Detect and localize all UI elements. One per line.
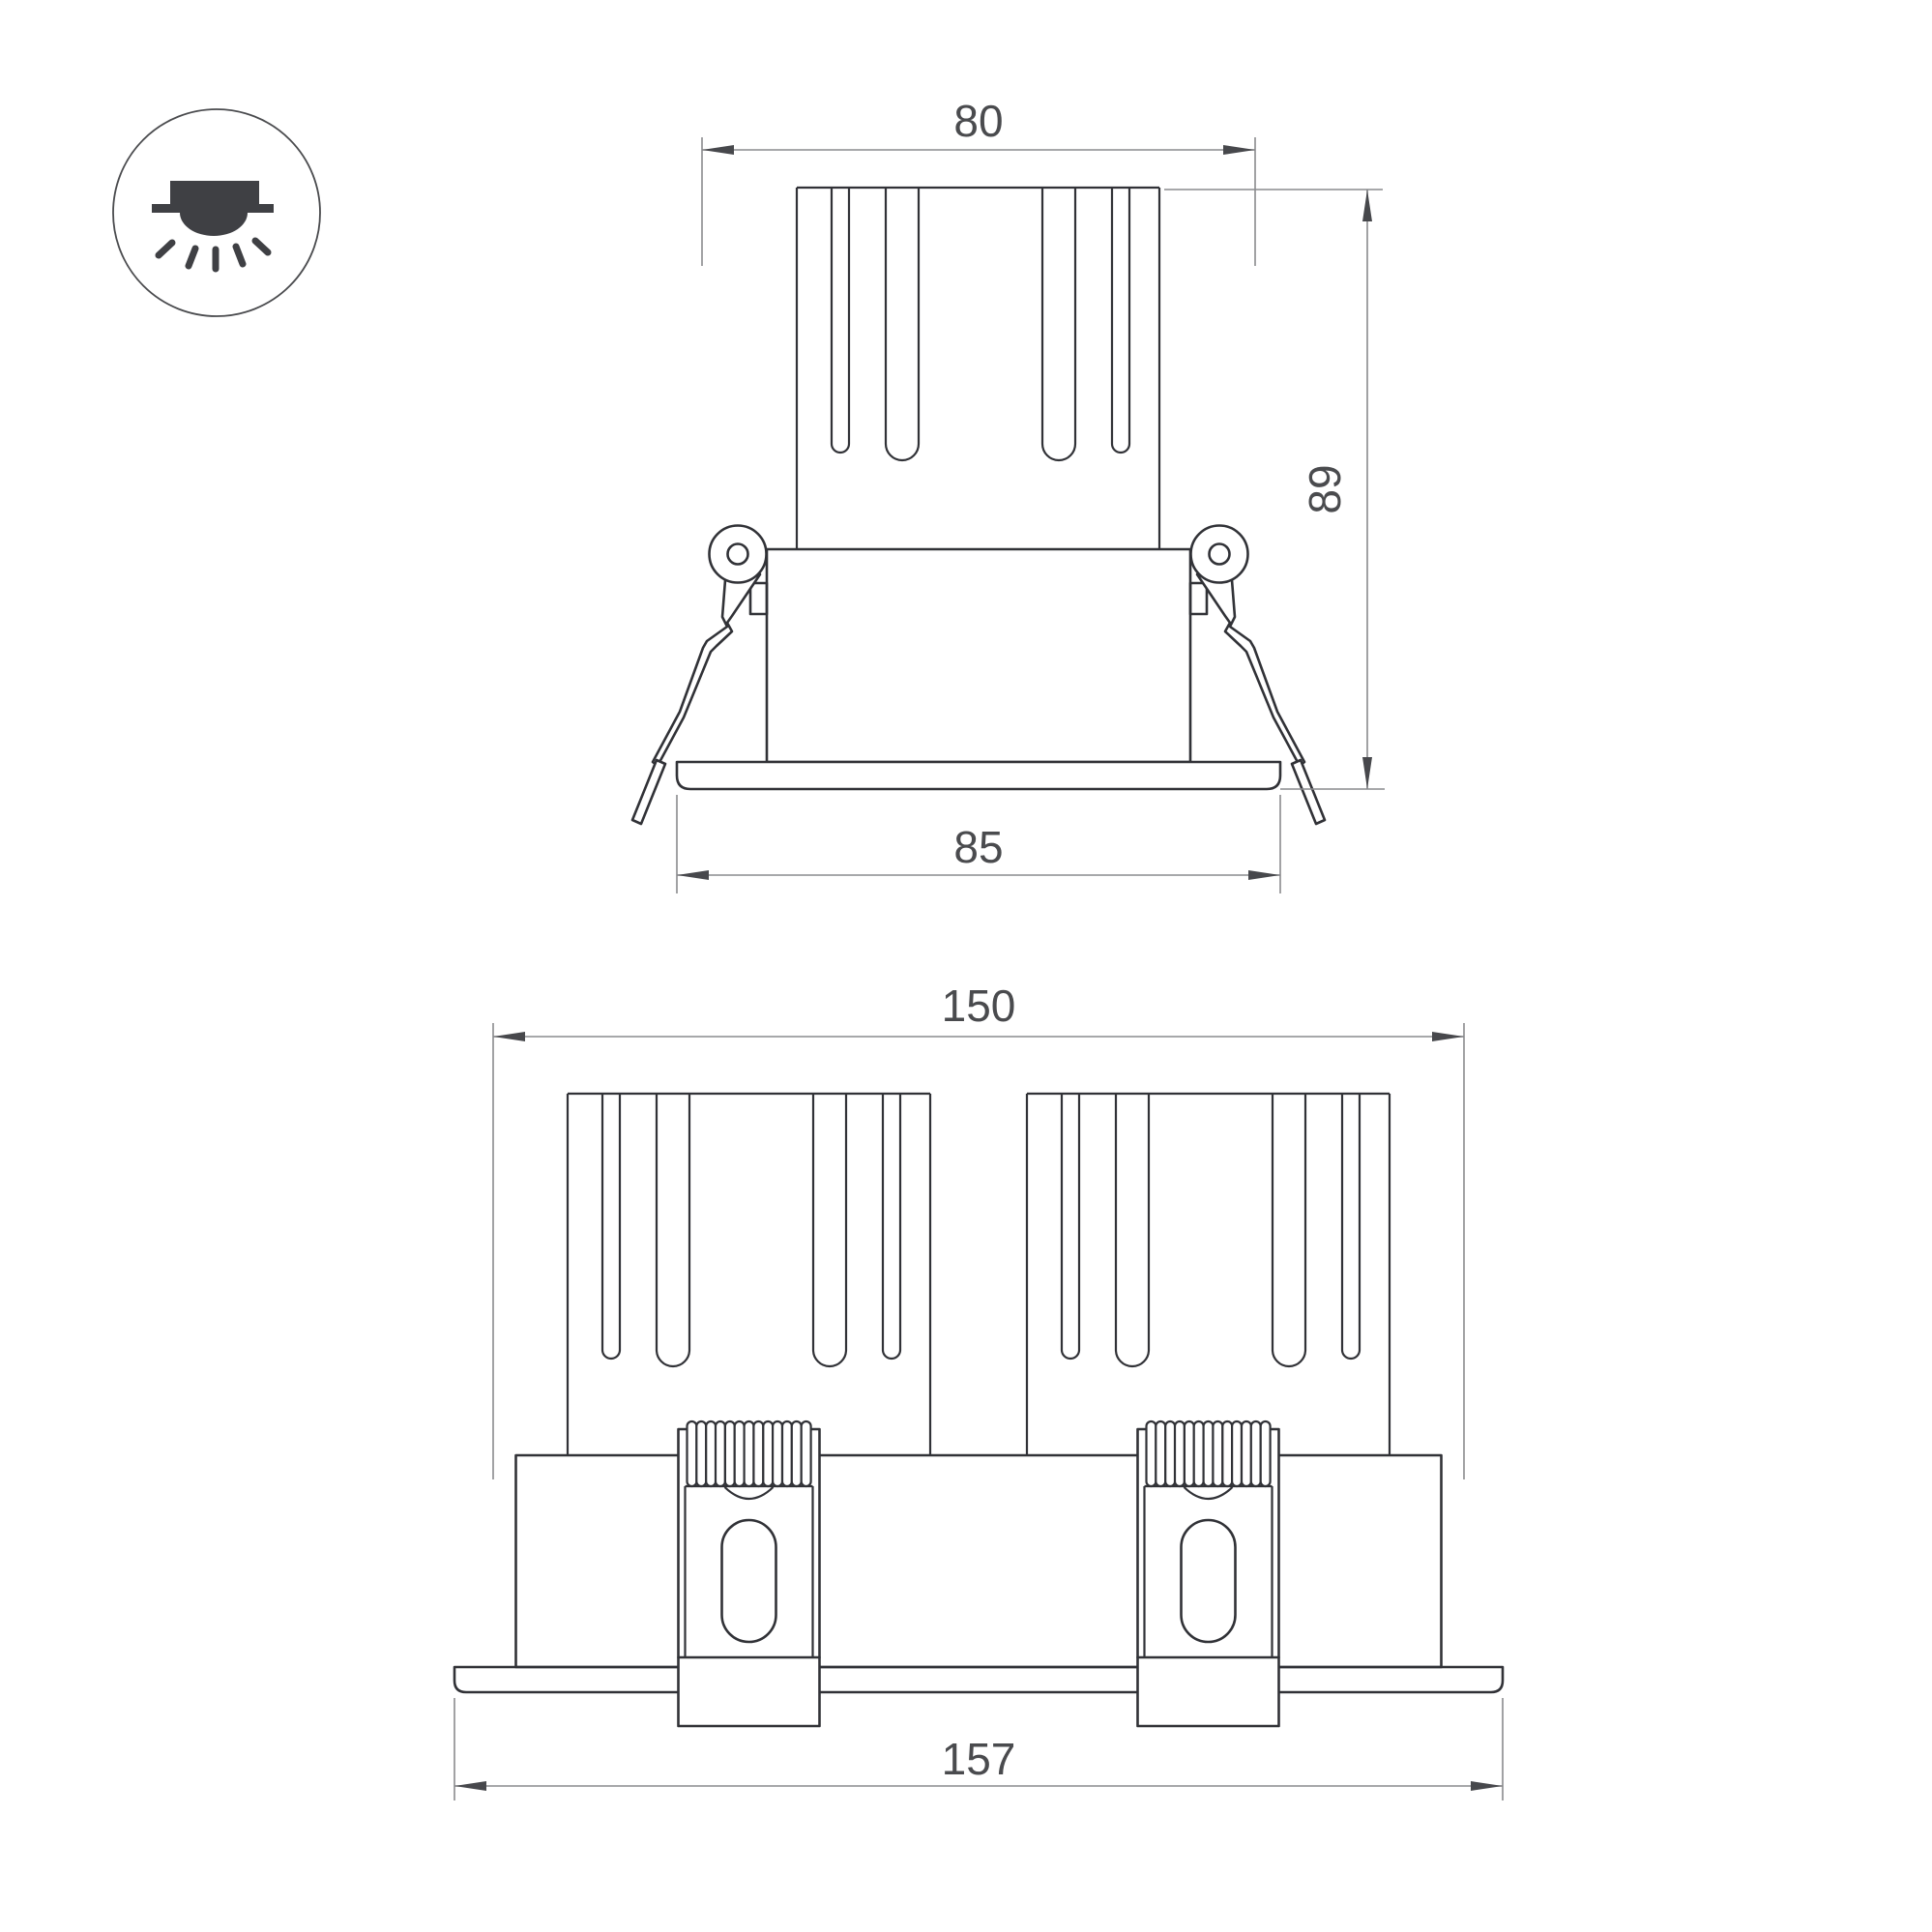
recessed-downlight-icon [113, 109, 320, 316]
driver-housing [767, 549, 1190, 762]
double-view-dimensions: 150 157 [454, 981, 1503, 1800]
icon-lamp-flange [152, 204, 274, 213]
mounting-bracket-right [1138, 1421, 1279, 1726]
dim-height-value: 89 [1300, 464, 1350, 513]
heatsink-fins [797, 188, 1159, 549]
dim-width-body: 150 [493, 981, 1464, 1479]
dim-width-top: 80 [702, 96, 1255, 266]
icon-light-rays [159, 241, 268, 269]
double-housing [516, 1455, 1442, 1667]
icon-lamp-dome [180, 213, 248, 236]
mounting-bracket-left [679, 1421, 820, 1726]
dim-width-body-value: 150 [942, 981, 1016, 1031]
heatsink-fins-left [568, 1094, 930, 1455]
dim-width-flange-double: 157 [454, 1698, 1503, 1800]
dim-width-top-value: 80 [953, 96, 1003, 146]
technical-drawing-page: 80 89 85 150 [0, 0, 1932, 1932]
dim-width-flange-value: 85 [953, 822, 1003, 872]
dim-width-flange-double-value: 157 [942, 1734, 1016, 1784]
front-view-single [632, 188, 1325, 824]
trim-flange [677, 762, 1280, 789]
heatsink-fins-right [1027, 1094, 1390, 1455]
dim-width-flange: 85 [677, 795, 1280, 893]
double-trim-flange [454, 1667, 1503, 1692]
icon-lamp-body [170, 181, 259, 204]
luminaire-dimension-drawing: 80 89 85 150 [0, 0, 1932, 1932]
clip-tab-left [750, 583, 767, 614]
dim-height: 89 [1164, 190, 1385, 789]
clip-tab-right [1190, 583, 1207, 614]
front-view-double [454, 1094, 1503, 1726]
